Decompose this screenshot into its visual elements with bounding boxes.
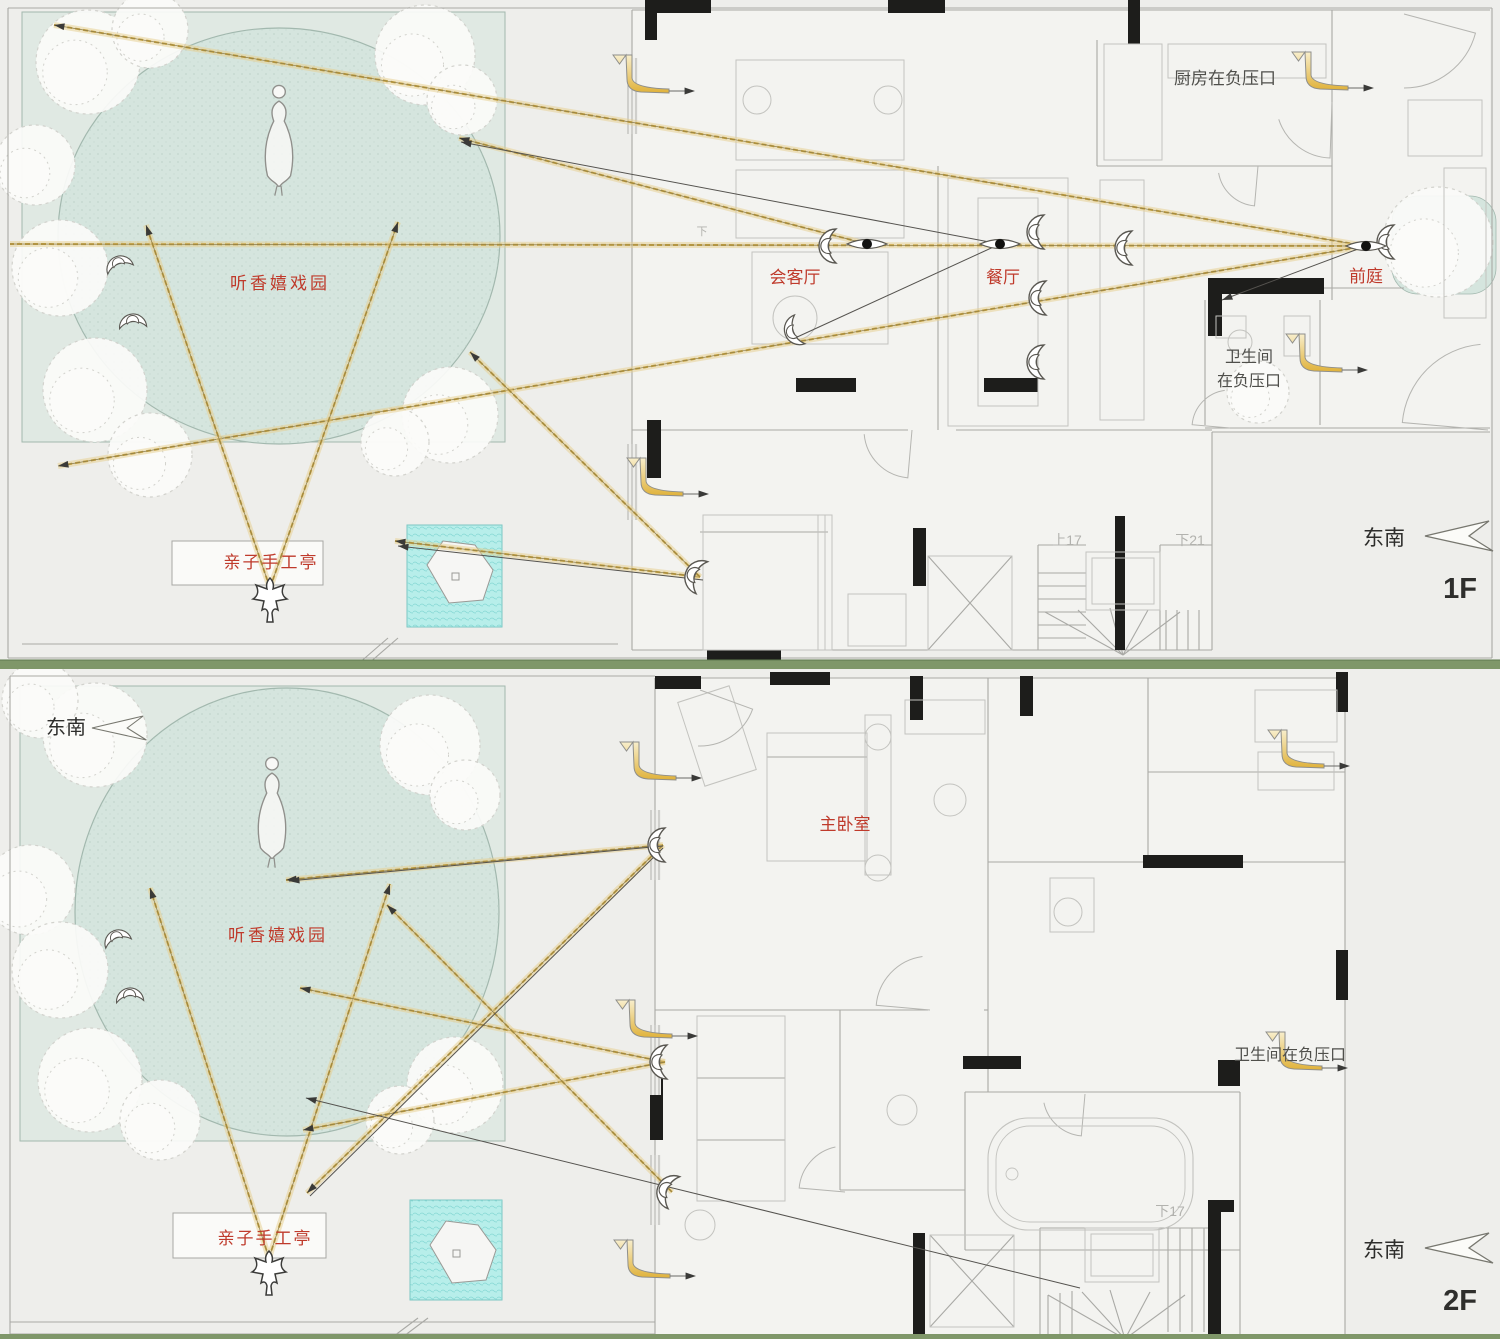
room-label: 餐厅 <box>986 268 1020 287</box>
tree <box>430 760 500 830</box>
wall-black <box>770 672 830 685</box>
wall-black <box>913 528 926 586</box>
floor-2f: 主卧室卫生间在负压口听香嬉戏园亲子手工亭下17东南东南2F <box>0 662 1493 1339</box>
tree <box>12 220 108 316</box>
tree <box>361 408 429 476</box>
room-label: 卫生间在负压口 <box>1234 1046 1346 1064</box>
tree-canopy-inner <box>18 248 78 308</box>
tree-canopy-inner <box>113 437 165 489</box>
wall-black <box>1020 676 1033 716</box>
room-label: 卫生间 <box>1225 348 1273 366</box>
room-label: 下21 <box>1175 532 1205 548</box>
eye-pupil <box>1361 241 1371 251</box>
room-label: 听香嬉戏园 <box>228 926 328 945</box>
room-label: 厨房在负压口 <box>1174 69 1276 88</box>
wall-black <box>796 378 856 392</box>
tree <box>1383 187 1493 297</box>
room-label: 下 <box>697 226 708 238</box>
room-label: 会客厅 <box>770 268 821 287</box>
floor-tag: 2F <box>1443 1285 1477 1317</box>
wall-black <box>984 378 1038 392</box>
floorplan-canvas: 厨房在负压口会客厅餐厅前庭卫生间在负压口听香嬉戏园亲子手工亭上17下21下东南1… <box>0 0 1500 1339</box>
building-area <box>655 678 1345 1339</box>
person-head <box>273 85 286 98</box>
tree-canopy-inner <box>365 428 407 470</box>
wall-black <box>647 420 661 478</box>
wall-black <box>1336 950 1348 1000</box>
room-label: 下17 <box>1155 1203 1185 1219</box>
tree <box>1227 361 1289 423</box>
wall-black <box>888 0 945 13</box>
eye-pupil <box>995 239 1005 249</box>
wall-black <box>1115 516 1125 650</box>
floorplan-svg: 厨房在负压口会客厅餐厅前庭卫生间在负压口听香嬉戏园亲子手工亭上17下21下东南1… <box>0 0 1500 1339</box>
wall-black <box>655 676 701 689</box>
tree <box>120 1080 200 1160</box>
room-label: 主卧室 <box>820 815 871 834</box>
sight-beam <box>10 244 1366 246</box>
room-label: 听香嬉戏园 <box>230 274 330 293</box>
wall-black <box>1208 278 1324 294</box>
tree-canopy-inner <box>1390 219 1458 287</box>
bottom-edge-strip <box>0 1334 1500 1339</box>
floor-tag: 1F <box>1443 573 1477 605</box>
tree-canopy-inner <box>43 40 107 104</box>
tree-canopy-inner <box>45 1058 109 1122</box>
room-label: 前庭 <box>1349 267 1383 286</box>
tree <box>366 1086 434 1154</box>
floor-divider <box>0 660 1500 669</box>
wall-black <box>1208 1212 1221 1337</box>
wall-black <box>645 0 657 40</box>
wall-black <box>1208 294 1222 336</box>
person-head <box>266 757 279 770</box>
room-label: 在负压口 <box>1217 372 1281 390</box>
room-label: 亲子手工亭 <box>224 553 319 572</box>
tree-canopy-inner <box>435 780 478 823</box>
room-label: 东南 <box>46 716 86 739</box>
eye-pupil <box>862 239 872 249</box>
tree-canopy-inner <box>18 950 78 1010</box>
wall-black <box>1336 672 1348 712</box>
room-label: 东南 <box>1363 1239 1405 1262</box>
tree-canopy-inner <box>125 1103 175 1153</box>
tree <box>12 922 108 1018</box>
wall-black <box>1143 855 1243 868</box>
wall-black <box>910 676 923 720</box>
tree-canopy-inner <box>50 368 114 432</box>
wall-black <box>963 1056 1021 1069</box>
wall-black <box>1128 0 1140 44</box>
room-label: 上17 <box>1052 532 1082 548</box>
room-label: 东南 <box>1363 527 1405 550</box>
wall-black <box>1208 1200 1234 1212</box>
room-label: 亲子手工亭 <box>218 1229 313 1248</box>
